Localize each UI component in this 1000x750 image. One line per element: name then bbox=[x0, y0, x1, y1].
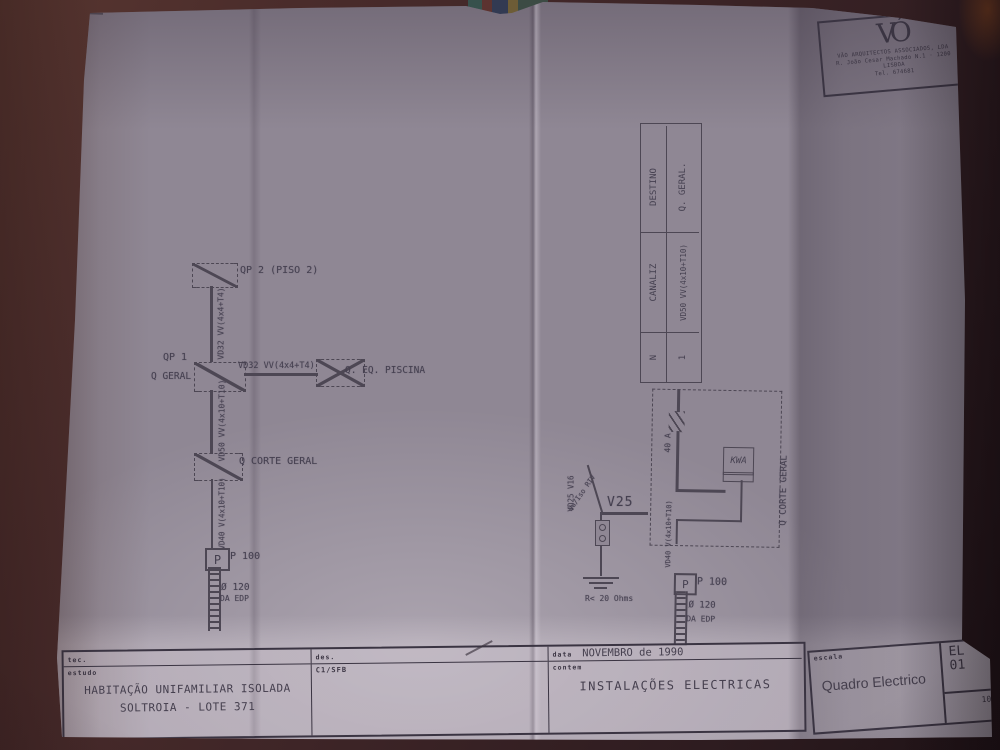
service-line bbox=[211, 479, 213, 548]
kwh-meter-base bbox=[723, 472, 754, 483]
table-row1-destino: Q. GERAL. bbox=[667, 126, 699, 232]
meter-entry-line bbox=[677, 389, 680, 412]
table-header-n: N bbox=[641, 332, 667, 382]
meter-detail-group: 40 A KWA VD40 V(4x10+T10) Q CORTE GERAL … bbox=[643, 384, 818, 657]
corte-geral-label: Q CORTE GERAL bbox=[239, 456, 317, 467]
feeder-qp2-cable-label: VD32 VV(4x4+T4) bbox=[216, 274, 227, 374]
contem-label: contem bbox=[549, 659, 802, 672]
data-label: data bbox=[549, 648, 573, 658]
feeder-qp2-line bbox=[210, 286, 213, 362]
cable-schedule-table: N CANALIZ DESTINO 1 VD50 VV(4x10+T10) Q.… bbox=[640, 123, 702, 383]
pencil-mark-top-left bbox=[63, 11, 103, 14]
escala-label: escala bbox=[809, 643, 939, 662]
photo-of-drawing: VÓ VÃO ARQUITECTOS ASSOCIADOS, LDA R. Jo… bbox=[0, 0, 1000, 750]
main-switch-rating: 40 A bbox=[662, 423, 673, 463]
data-value: NOVEMBRO de 1990 bbox=[582, 646, 683, 659]
meter-duct-diameter: Ø 120 bbox=[688, 600, 715, 610]
duct-diameter-label: Ø 120 bbox=[221, 582, 250, 593]
drawing-title: Quadro Electrico bbox=[821, 669, 942, 694]
titleblock-date-cell: data NOVEMBRO de 1990 contem INSTALAÇÕES… bbox=[548, 644, 803, 733]
ground-symbol-bar3 bbox=[594, 587, 607, 589]
kwh-meter-label: KWA bbox=[730, 456, 746, 466]
earth-bar bbox=[600, 512, 648, 515]
table-header-canaliz: CANALIZ bbox=[641, 232, 667, 332]
qp1-sub-label: Q GERAL bbox=[151, 371, 191, 382]
contem-value: INSTALAÇÕES ELECTRICAS bbox=[549, 677, 802, 694]
sheet-number: 10 bbox=[945, 690, 997, 723]
titleblock-right: escala Quadro Electrico EL 01 10 bbox=[807, 637, 999, 734]
feeder-piscina-cable-label: VD32 VV(4x4+T4) bbox=[238, 361, 315, 371]
table-row1-n: 1 bbox=[667, 332, 699, 382]
drawing-sheet: VÓ VÃO ARQUITECTOS ASSOCIADOS, LDA R. Jo… bbox=[0, 0, 1000, 750]
ground-symbol-bar1 bbox=[583, 577, 619, 579]
project-title-line2: SOLTROIA - LOTE 371 bbox=[64, 699, 311, 715]
feeder-piscina-line bbox=[244, 373, 318, 376]
earth-resistance-label: R< 20 Ohms bbox=[585, 594, 633, 603]
qp2-label: QP 2 (PISO 2) bbox=[240, 265, 318, 276]
portinhola-label: P 100 bbox=[230, 551, 260, 562]
earth-tag: V25 bbox=[607, 495, 633, 510]
titleblock-project-cell: tec. estudo HABITAÇÃO UNIFAMILIAR ISOLAD… bbox=[64, 649, 312, 738]
titleblock-title-cell: escala Quadro Electrico bbox=[809, 643, 945, 732]
feeder-corte-line bbox=[210, 390, 213, 454]
meter-cable-label: VD40 V(4x10+T10) bbox=[663, 489, 675, 579]
piscina-label: Q. EQ. PISCINA bbox=[345, 365, 425, 376]
earth-test-link bbox=[595, 520, 610, 546]
titleblock-left: tec. estudo HABITAÇÃO UNIFAMILIAR ISOLAD… bbox=[62, 642, 807, 740]
estudo-label: estudo bbox=[64, 664, 311, 677]
des-label: des. bbox=[312, 651, 336, 661]
earth-cable-label: VD25 V16 bbox=[566, 454, 577, 534]
ground-symbol-bar2 bbox=[589, 582, 613, 584]
portinhola-letter: P bbox=[214, 553, 221, 567]
des-value: C1/SFB bbox=[312, 662, 548, 675]
qp1-label: QP 1 bbox=[163, 352, 187, 363]
duct-source-label: DA EDP bbox=[220, 594, 249, 603]
meter-portinhola-label: P 100 bbox=[697, 576, 727, 588]
sheet-code-line2: 01 bbox=[949, 656, 993, 673]
tec-label: tec. bbox=[64, 654, 88, 664]
meter-corte-label: Q CORTE GERAL bbox=[777, 435, 790, 545]
table-header-destino: DESTINO bbox=[641, 126, 667, 232]
titleblock-des-cell: des. C1/SFB bbox=[311, 647, 549, 736]
project-title-line1: HABITAÇÃO UNIFAMILIAR ISOLADA bbox=[64, 681, 311, 697]
titleblock-code-cell: EL 01 10 bbox=[939, 639, 997, 723]
meter-portinhola-letter: P bbox=[682, 578, 689, 591]
meter-duct-source: DA EDP bbox=[686, 614, 715, 624]
table-row1-canaliz: VD50 VV(4x10+T10) bbox=[667, 232, 699, 332]
